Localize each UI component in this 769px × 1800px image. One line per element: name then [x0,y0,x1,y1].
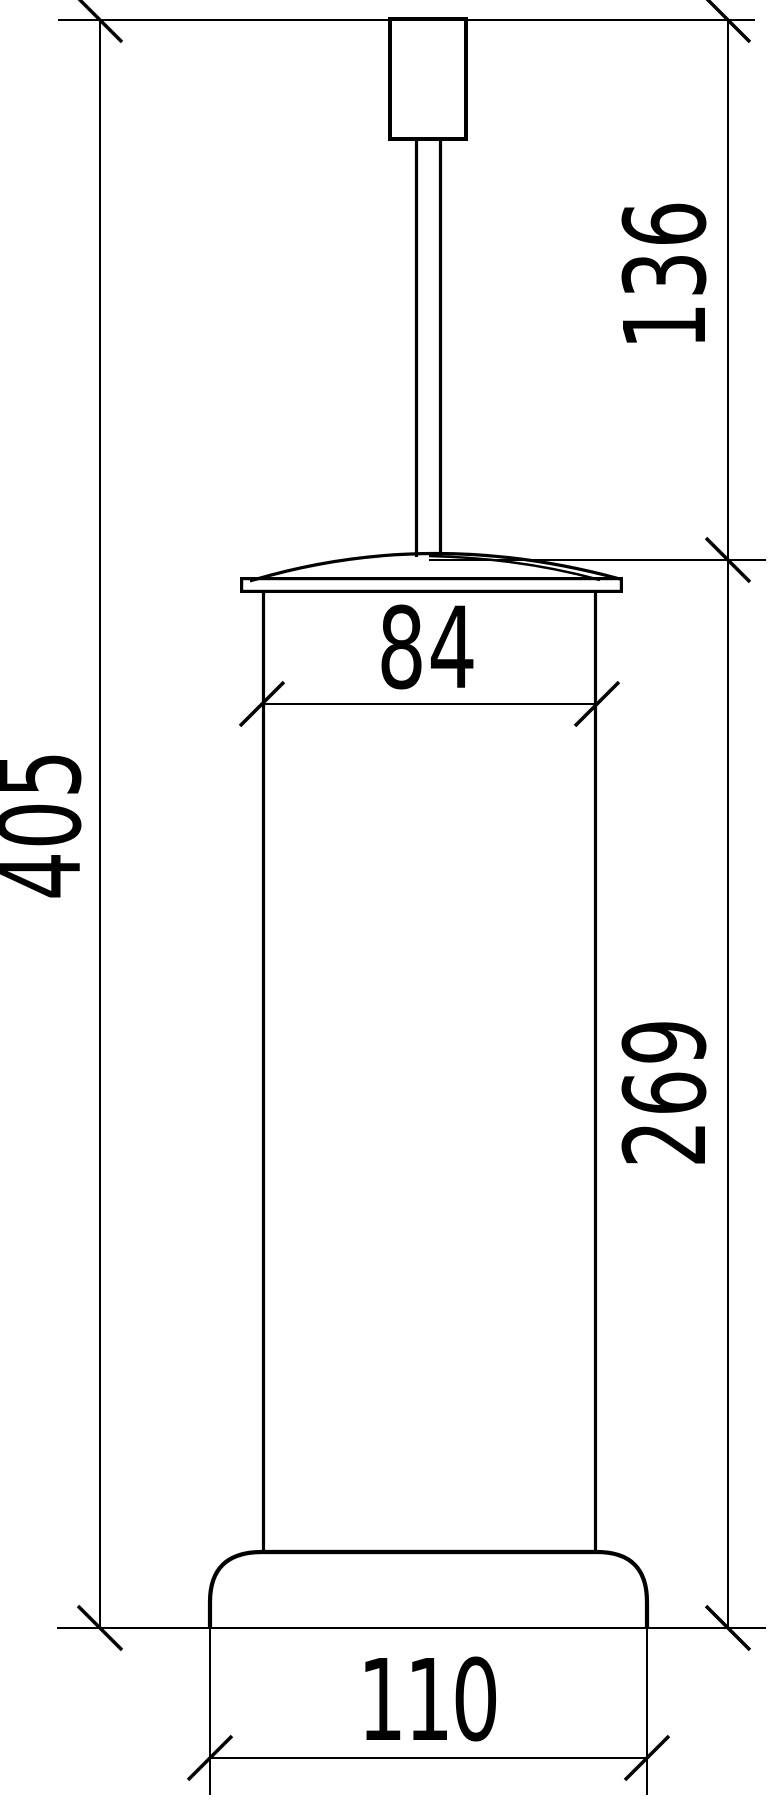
overall-height-label: 405 [0,745,98,905]
container-width-label: 84 [327,594,527,706]
drawing-canvas: 405 136 269 84 110 [0,0,769,1800]
container-height-label: 269 [611,1013,723,1173]
base-width-label: 110 [327,1646,527,1758]
handle-knob-outline [390,19,466,139]
lid-dome-outer-curve [250,553,620,581]
handle-height-label: 136 [611,195,723,355]
base-outline [210,1552,647,1627]
